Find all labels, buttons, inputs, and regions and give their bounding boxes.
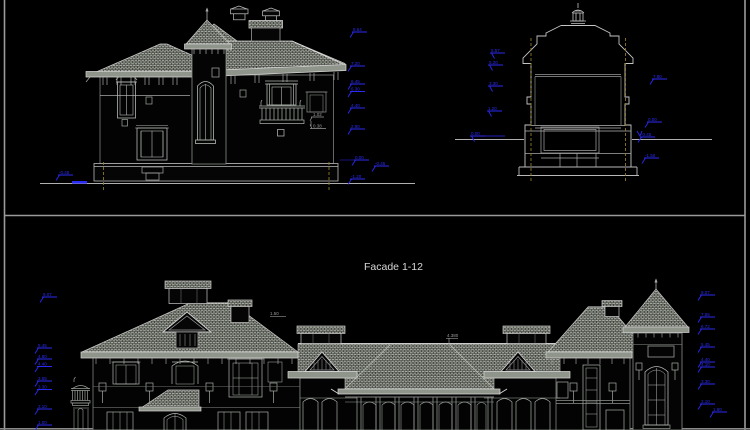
- svg-text:2.90: 2.90: [351, 124, 360, 129]
- svg-text:4.40: 4.40: [351, 103, 360, 108]
- svg-text:3.55: 3.55: [38, 376, 47, 381]
- svg-text:4.380: 4.380: [447, 333, 459, 338]
- svg-text:7.20: 7.20: [351, 61, 360, 66]
- svg-text:-0.45: -0.45: [375, 161, 386, 166]
- svg-text:1.80: 1.80: [713, 407, 722, 412]
- svg-text:6.72: 6.72: [701, 324, 710, 329]
- svg-text:1.50: 1.50: [270, 311, 279, 316]
- svg-text:1.20: 1.20: [488, 106, 497, 111]
- svg-text:9.07: 9.07: [43, 292, 52, 297]
- svg-text:6.30: 6.30: [351, 87, 360, 92]
- svg-text:3.30: 3.30: [701, 379, 710, 384]
- svg-text:8.64: 8.64: [353, 27, 362, 32]
- svg-text:0.00: 0.00: [648, 117, 657, 122]
- svg-text:0.00: 0.00: [471, 131, 480, 136]
- svg-text:3.30: 3.30: [489, 81, 498, 86]
- svg-text:4.40: 4.40: [38, 362, 47, 367]
- svg-text:4.10: 4.10: [701, 362, 710, 367]
- svg-text:7.80: 7.80: [653, 74, 662, 79]
- svg-text:0.00: 0.00: [355, 155, 364, 160]
- svg-text:-1.50: -1.50: [645, 153, 656, 158]
- svg-text:5.57: 5.57: [491, 48, 500, 53]
- svg-text:6.45: 6.45: [351, 79, 360, 84]
- svg-text:7.55: 7.55: [701, 312, 710, 317]
- svg-text:-1.20: -1.20: [351, 174, 362, 179]
- svg-text:-0.45: -0.45: [59, 170, 70, 175]
- svg-text:0.38: 0.38: [313, 124, 322, 129]
- svg-text:9.07: 9.07: [701, 290, 710, 295]
- svg-text:Facade 1-12: Facade 1-12: [364, 261, 423, 273]
- svg-text:5.20: 5.20: [489, 60, 498, 65]
- svg-text:5.45: 5.45: [38, 343, 47, 348]
- svg-text:1.02: 1.02: [313, 112, 322, 117]
- svg-text:4.80: 4.80: [38, 354, 47, 359]
- svg-text:2.10: 2.10: [701, 399, 710, 404]
- svg-text:5.45: 5.45: [701, 342, 710, 347]
- svg-text:1.00: 1.00: [38, 420, 47, 425]
- svg-text:-0.45: -0.45: [641, 132, 652, 137]
- svg-text:3.30: 3.30: [38, 385, 47, 390]
- svg-text:2.10: 2.10: [38, 404, 47, 409]
